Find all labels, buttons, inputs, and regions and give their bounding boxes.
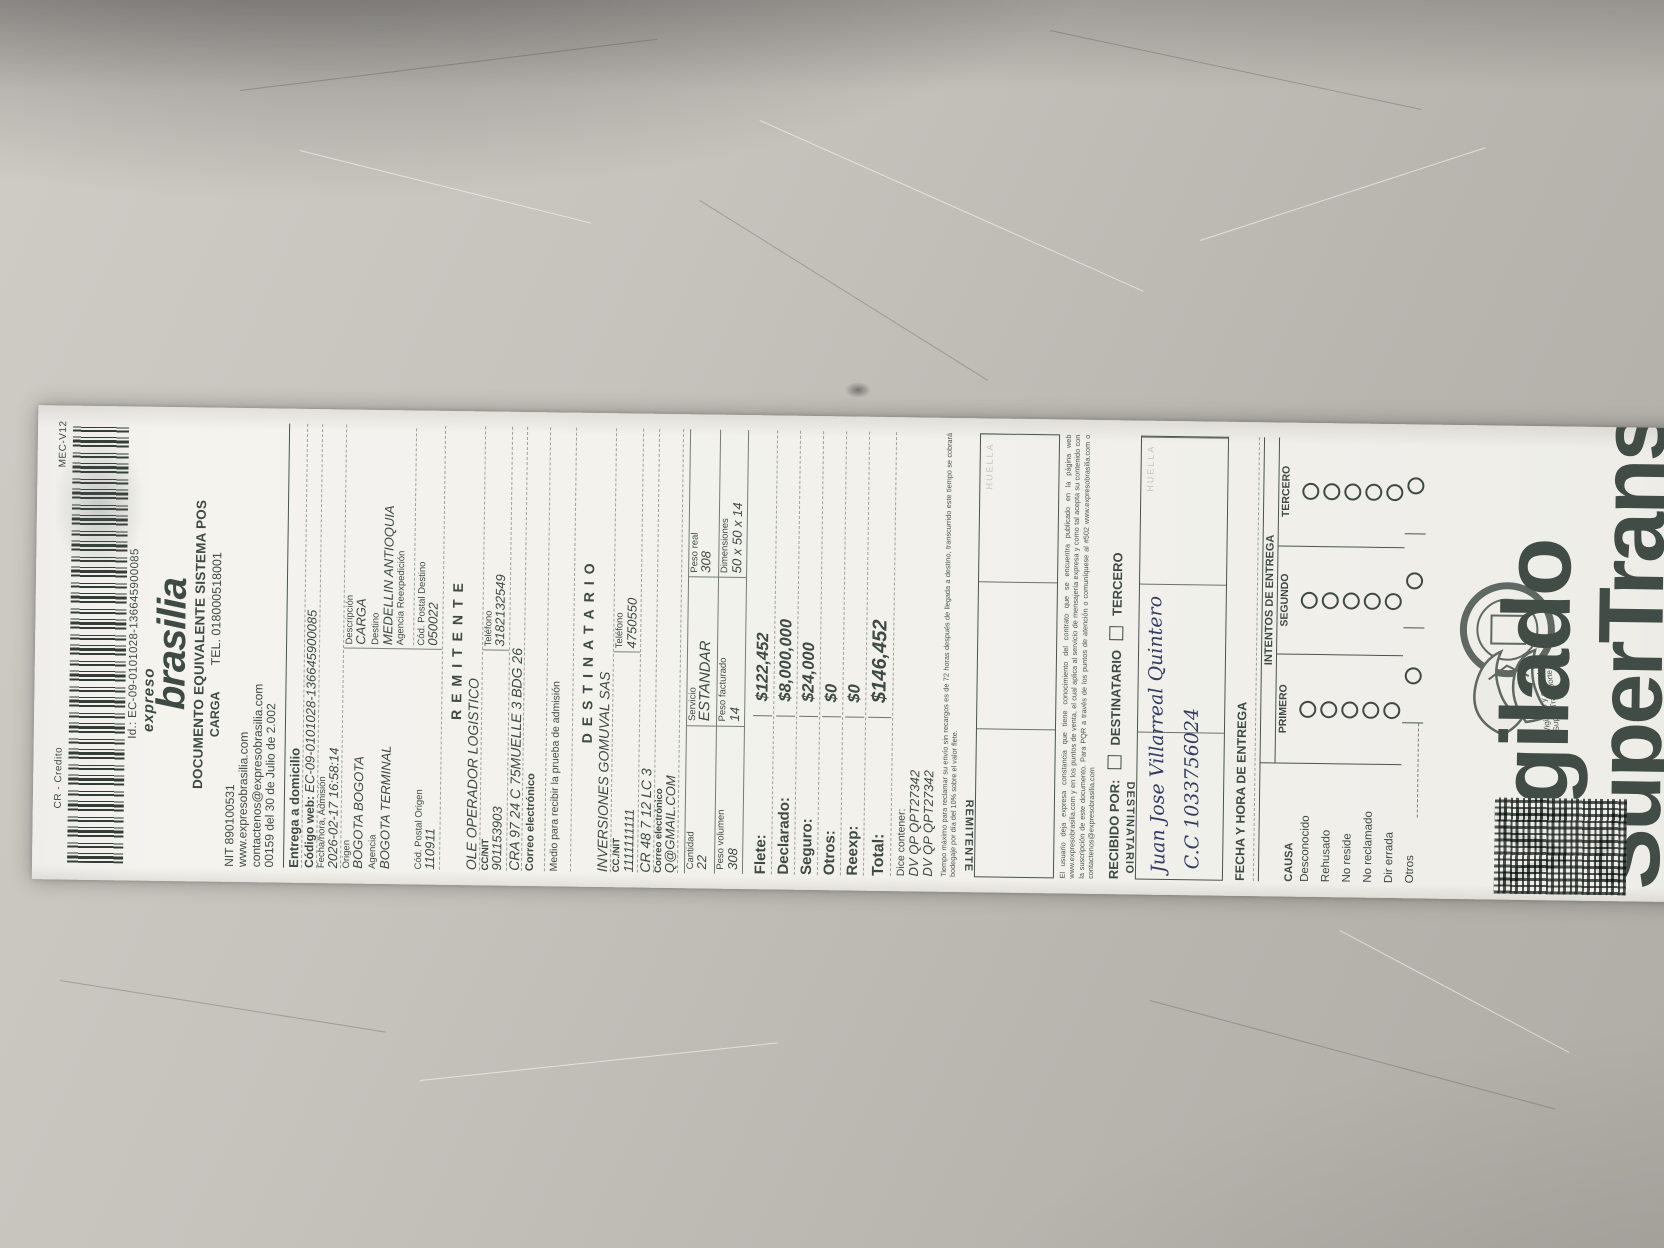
destinatario-section: DESTINATARIO INVERSIONES GOMUVAL SAS CC.… <box>577 428 684 873</box>
photo-of-receipt: CR - Credito MEC-V12 Id.: EC-09-0101028-… <box>0 0 1664 1248</box>
postal-codes-row: Cód. Postal Origen 110911 Cód. Postal De… <box>413 425 446 869</box>
intentos-table: INTENTOS DE ENTREGA CAUSA PRIMERO SEGUND… <box>1257 437 1426 883</box>
agency-dest-row: Agencia BOGOTA TERMINAL Destino MEDELLIN… <box>367 425 419 870</box>
col-tercero: TERCERO <box>1278 437 1301 546</box>
causa-label-otros: Otros <box>1404 823 1417 883</box>
medio-prueba-row: Medio para recibir la prueba de admisión <box>548 427 577 871</box>
reexp-label: Reexp: <box>844 717 863 875</box>
remitente-huella-label: HUELLA <box>984 442 995 489</box>
option-circle <box>1299 700 1316 717</box>
otros-blank-line <box>1404 724 1418 818</box>
agencia-reexpedicion-label: Agencia Reexpedición <box>396 428 417 645</box>
remitente-sign-cell-1 <box>975 729 1055 878</box>
destinatario-huella-label: HUELLA <box>1145 445 1156 492</box>
brand-logo-brasilia: brasilia <box>153 422 191 866</box>
cantidad-cell: Cantidad 22 <box>685 725 716 874</box>
brand-logo: expreso brasilia <box>141 422 191 867</box>
option-circle <box>1365 484 1382 501</box>
option-circle <box>1300 592 1317 609</box>
option-circle <box>1384 593 1401 610</box>
causa-label-desconocido: Desconocido <box>1299 764 1313 882</box>
option-circle <box>1363 593 1380 610</box>
dimensiones-value: 50 x 50 x 14 <box>730 434 746 574</box>
desk-scratch <box>1340 930 1570 1053</box>
destino-cell: Destino MEDELLIN ANTIOQUIA Agencia Reexp… <box>370 425 419 650</box>
handwritten-cc: C.C 1033756024 <box>1180 708 1203 869</box>
option-circle <box>1386 484 1403 501</box>
causa-label-rehusado: Rehusado <box>1320 764 1334 882</box>
option-circle <box>1406 572 1423 589</box>
codigo-web-label: Código web: <box>302 796 317 868</box>
remitente-email-row: Correo electrónico <box>522 427 551 871</box>
remitente-cc-value: 901153903 <box>490 654 507 871</box>
option-circle <box>1341 701 1358 718</box>
qr-code <box>1494 798 1627 896</box>
fecha-hora-entrega-title: FECHA Y HORA DE ENTREGA <box>1232 437 1259 881</box>
causa-circle-cell <box>1340 547 1363 656</box>
causa-circle-cell <box>1319 547 1342 656</box>
servicio-value: ESTANDAR <box>698 582 716 722</box>
option-circle <box>1404 667 1421 684</box>
desk-scratch <box>1150 1000 1556 1110</box>
causa-circle-cell <box>1341 438 1364 547</box>
servicio-cell: Servicio ESTANDAR <box>687 577 718 726</box>
recibido-por-label: RECIBIDO POR: <box>1106 779 1122 879</box>
option-circle <box>1302 483 1319 500</box>
descripcion-value: CARGA <box>354 428 371 645</box>
origen-cell: Origen BOGOTA BOGOTA <box>341 648 370 868</box>
remitente-section: REMITENTE OLE OPERADOR LOGISTICO CC/NIT … <box>446 426 578 872</box>
causa-circle-cell <box>1299 438 1322 547</box>
option-circle <box>1362 701 1379 718</box>
destinatario-tel-value: 4750550 <box>625 431 642 648</box>
causa-header: CAUSA <box>1273 763 1296 881</box>
option-circle <box>1321 592 1338 609</box>
remitente-cc-cell: CC/NIT 901153903 <box>479 650 508 870</box>
remitente-tel-cell: Teléfono 3182132549 <box>483 426 512 650</box>
phone-line: TEL. 018000518001 <box>209 552 225 665</box>
handwritten-name: Juan Jose Villarreal Quintero <box>1144 596 1169 873</box>
cod-postal-destino-value: 050022 <box>426 429 443 646</box>
legal-paragraph-1: Tiempo máximo para reclamar su envío sin… <box>939 433 964 877</box>
legal-paragraph-2: El usuario deja expresa constancia que t… <box>1058 434 1102 878</box>
cod-postal-destino-cell: Cód. Postal Destino 050022 <box>416 425 445 649</box>
destinatario-signature-label: DESTINATARIO <box>1123 781 1136 874</box>
causa-circle-cell <box>1361 547 1384 656</box>
reexp-value: $0 <box>845 431 868 717</box>
agencia-cell: Agencia BOGOTA TERMINAL <box>367 649 416 870</box>
causa-circle-cell <box>1403 534 1425 629</box>
delivery-section: Entrega a domicilio Código web: EC-09-01… <box>283 424 446 870</box>
dice-contener-block: Dice contener: DV QP QPT27342 DV QP QPT2… <box>895 432 941 877</box>
causa-circle-cell <box>1296 655 1319 764</box>
desk-scratch <box>1050 30 1422 110</box>
intentos-blank-cell <box>1258 763 1275 881</box>
recibido-opt-destinatario: DESTINATARIO <box>1107 650 1123 746</box>
peso-real-value: 308 <box>700 433 716 573</box>
remitente-signature-label: REMITENTE <box>962 800 975 873</box>
destinatario-tel-cell: Teléfono 4750550 <box>614 428 643 652</box>
destinatario-cc-value: 1111111111 <box>621 655 638 872</box>
desk-scratch <box>300 150 591 224</box>
flete-label: Flete: <box>752 716 771 874</box>
causa-label-no-reclamado: No reclamado <box>1362 765 1376 883</box>
shipment-row-1: Cantidad 22 Servicio ESTANDAR Peso real … <box>684 429 720 873</box>
company-info: NIT 890100531 www.expresobrasilia.com co… <box>223 423 283 868</box>
causa-circle-cell <box>1383 439 1406 548</box>
medio-prueba-label: Medio para recibir la prueba de admisión <box>548 681 563 871</box>
charges-table: Flete: $122,452 Declarado: $8,000,000 Se… <box>749 430 897 876</box>
peso-volumen-cell: Peso volumen 308 <box>715 725 744 874</box>
declarado-label: Declarado: <box>775 717 794 875</box>
origen-value: BOGOTA BOGOTA <box>351 652 368 869</box>
destinatario-cc-cell: CC./NIT 1111111111 <box>611 652 640 872</box>
cantidad-value: 22 <box>695 730 711 870</box>
peso-facturado-value: 14 <box>728 582 744 722</box>
causa-circle-cell <box>1317 655 1340 764</box>
payment-type-label: CR - Credito <box>53 747 65 809</box>
document-subtitle: CARGA <box>208 691 223 737</box>
declarado-value: $8,000,000 <box>776 431 799 717</box>
shipment-row-2: Peso volumen 308 Peso facturado 14 Dimen… <box>714 430 749 874</box>
agencia-value: BOGOTA TERMINAL <box>377 652 394 869</box>
causa-circle-cell <box>1362 439 1385 548</box>
causa-label-dir-errada: Dir errada <box>1383 765 1397 883</box>
remitente-sign-cell-2 <box>977 581 1057 730</box>
desk-scratch <box>420 1042 778 1081</box>
col-primero: PRIMERO <box>1275 655 1298 764</box>
remitente-email-label: Correo electrónico <box>524 773 537 871</box>
peso-real-cell: Peso real 308 <box>689 429 720 577</box>
desk-scratch <box>240 39 657 91</box>
otros-value: $0 <box>822 431 845 717</box>
option-circle <box>1342 592 1359 609</box>
seguro-label: Seguro: <box>798 717 817 875</box>
flete-value: $122,452 <box>753 430 776 716</box>
destinatario-signature-box: DESTINATARIO HUELLA Juan Jose Villarreal… <box>1135 436 1229 881</box>
causa-circle-cell <box>1402 629 1424 724</box>
cod-postal-origen-value: 110911 <box>423 653 440 870</box>
causa-circle-cell <box>1320 438 1343 547</box>
destinatario-checkbox <box>1108 755 1122 769</box>
total-value: $146,452 <box>868 432 895 718</box>
causa-label-no-reside: No reside <box>1341 764 1355 882</box>
codigo-web-value: EC-09-0101028-136645900085 <box>302 610 320 793</box>
causa-circle-cell <box>1298 546 1321 655</box>
receipt: CR - Credito MEC-V12 Id.: EC-09-0101028-… <box>32 405 1664 903</box>
col-segundo: SEGUNDO <box>1277 546 1300 655</box>
desk-mark <box>845 382 871 398</box>
option-circle <box>1323 483 1340 500</box>
descripcion-cell: Descripción CARGA <box>344 424 373 648</box>
recibido-opt-tercero: TERCERO <box>1109 552 1125 616</box>
seguro-value: $24,000 <box>799 431 822 717</box>
causa-circle-cell <box>1338 656 1361 765</box>
desk-scratch <box>699 200 988 381</box>
dimensiones-cell: Dimensiones 50 x 50 x 14 <box>719 430 748 578</box>
cod-postal-origen-cell: Cód. Postal Origen 110911 <box>413 649 442 869</box>
remitente-tel-value: 3182132549 <box>493 430 510 647</box>
tercero-checkbox <box>1109 626 1123 640</box>
causa-circle-cell <box>1380 656 1403 765</box>
destinatario-email-row: Correo electrónico Q@GMAIL.COM <box>654 429 684 873</box>
otros-label: Otros: <box>821 717 840 875</box>
option-circle <box>1320 701 1337 718</box>
receipt-footer: Vigilado y controlado Super Transporte V… <box>1450 425 1664 903</box>
causa-circle-cell <box>1382 548 1405 657</box>
remitente-signature-box: REMITENTE HUELLA <box>974 433 1060 878</box>
peso-facturado-cell: Peso facturado 14 <box>717 577 746 726</box>
causa-circle-cell <box>1404 439 1426 534</box>
causa-circle-cell <box>1359 656 1382 765</box>
option-circle <box>1344 484 1361 501</box>
peso-volumen-value: 308 <box>726 730 742 870</box>
desk-scratch <box>60 980 386 1033</box>
option-circle <box>1407 478 1424 495</box>
charge-row-total: Total: $146,452 <box>864 432 897 876</box>
desk-scratch <box>1200 147 1486 241</box>
option-circle <box>1383 702 1400 719</box>
total-label: Total: <box>870 718 890 876</box>
desk-scratch <box>760 120 1144 292</box>
